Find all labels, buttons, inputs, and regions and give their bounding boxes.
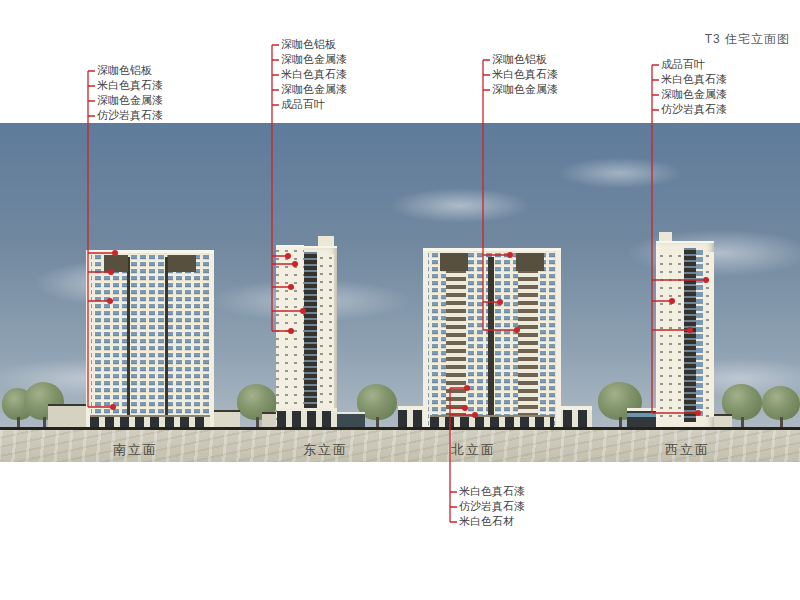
- material-label: 深咖色金属漆: [492, 83, 558, 96]
- east-tower: [276, 246, 337, 430]
- west-tower-window-dashes: [660, 252, 682, 417]
- west-tower: [656, 241, 714, 430]
- material-label: 米白色真石漆: [459, 485, 525, 498]
- north-tower: [423, 248, 561, 431]
- material-label: 深咖色金属漆: [281, 83, 347, 96]
- north-tower-pier: [423, 251, 428, 431]
- ground-line: [0, 427, 800, 430]
- elevation-label-north: 北立面: [451, 441, 496, 459]
- north-tower-balcony-stack: [518, 269, 538, 417]
- south-tower-dark-strip: [127, 257, 130, 417]
- north-tower-cap-panel: [440, 251, 468, 271]
- north-tower-balcony-stack: [446, 269, 466, 417]
- elevation-label-west: 西立面: [665, 441, 710, 459]
- west-podium-sign-band: [627, 413, 657, 417]
- material-label: 米白色真石漆: [97, 79, 163, 92]
- north-tower-pier: [556, 251, 561, 431]
- east-tower-window-dashes: [320, 254, 334, 420]
- east-tower-glazing-strip: [304, 252, 317, 424]
- elevation-label-south: 南立面: [113, 441, 158, 459]
- north-tower-cap-panel: [516, 251, 544, 271]
- south-tower-pier: [86, 253, 91, 431]
- material-label: 仿沙岩真石漆: [661, 103, 727, 116]
- material-label: 米白色真石漆: [281, 68, 347, 81]
- material-label: 米白色石材: [459, 515, 514, 528]
- south-tower-cap-panel: [168, 253, 196, 272]
- south-tower-dark-strip: [165, 257, 168, 417]
- south-tower-cap-panel: [104, 253, 128, 272]
- elevation-sheet: 深咖色铝板 米白色真石漆 深咖色金属漆 仿沙岩真石漆 深咖色铝板 深咖色金属漆 …: [0, 0, 800, 600]
- material-label: 成品百叶: [661, 58, 705, 71]
- material-label: 深咖色铝板: [97, 64, 152, 77]
- south-tower: [86, 250, 214, 431]
- east-tower-left-slab: [276, 245, 304, 429]
- west-tower-glazing-strip: [684, 248, 696, 422]
- material-label: 米白色真石漆: [492, 68, 558, 81]
- material-label: 深咖色金属漆: [281, 53, 347, 66]
- tree-crown: [762, 386, 800, 420]
- material-label: 米白色真石漆: [661, 73, 727, 86]
- west-tower-window-column: [696, 250, 703, 418]
- west-tower-edge-windows: [706, 252, 714, 417]
- material-label: 成品百叶: [281, 98, 325, 111]
- material-label: 深咖色铝板: [281, 38, 336, 51]
- material-label: 仿沙岩真石漆: [97, 109, 163, 122]
- south-tower-pier: [209, 253, 214, 431]
- material-label: 深咖色铝板: [492, 53, 547, 66]
- north-tower-dark-strip: [488, 257, 494, 417]
- material-label: 深咖色金属漆: [97, 94, 163, 107]
- material-label: 深咖色金属漆: [661, 88, 727, 101]
- tree: [762, 386, 800, 428]
- material-label: 仿沙岩真石漆: [459, 500, 525, 513]
- sheet-title: T3 住宅立面图: [640, 31, 790, 48]
- elevation-label-east: 东立面: [303, 441, 348, 459]
